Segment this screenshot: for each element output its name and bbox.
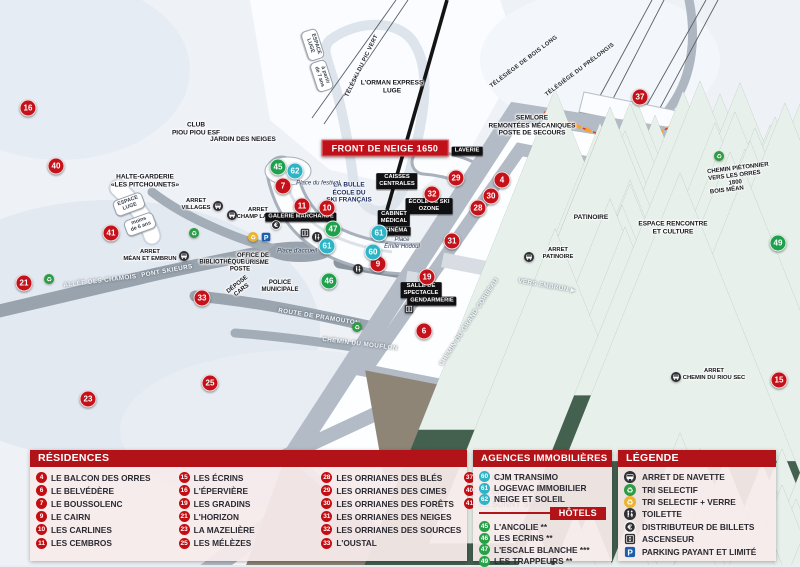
legend-label: ARRET DE NAVETTE — [642, 472, 725, 482]
recycle-icon — [44, 274, 54, 284]
poi-label: ARRET CHEMIN DU RIOU SEC — [683, 368, 745, 382]
map-marker: 25 — [202, 375, 219, 392]
agence-number-badge: 60 — [479, 471, 490, 482]
map-marker: 33 — [194, 290, 211, 307]
recycle-glass-icon — [624, 496, 636, 508]
residence-name: LES ORRIANES DES BLÉS — [336, 473, 442, 483]
residence-entry: 15 LES ÉCRINS — [179, 471, 319, 484]
map-marker: 6 — [416, 323, 433, 340]
map-marker: 47 — [325, 221, 342, 238]
map-marker: 15 — [771, 372, 788, 389]
residence-name: LES ORRIANES DES FORÊTS — [336, 499, 454, 509]
hotel-entry: 47 L'ESCALE BLANCHE *** — [479, 544, 606, 555]
legend-entry: TRI SELECTIF — [624, 483, 770, 495]
bus-icon — [227, 210, 237, 220]
residence-entry: 9 LE CAIRN — [36, 510, 176, 523]
residence-number-badge: 4 — [36, 472, 47, 483]
bus-icon — [524, 252, 534, 262]
residence-number-badge: 21 — [179, 511, 190, 522]
poi-label: L'ORMAN EXPRESS LUGE — [361, 79, 424, 94]
residence-entry: 21 L'HORIZON — [179, 510, 319, 523]
residence-number-badge: 11 — [36, 538, 47, 549]
residences-list: 4 LE BALCON DES ORRES 6 LE BELVÉDÈRE 7 L… — [30, 467, 467, 561]
residence-number-badge: 15 — [179, 472, 190, 483]
poi-label: HALTE-GARDERIE «LES PITCHOUNETS» — [111, 173, 179, 188]
residence-entry: 4 LE BALCON DES ORRES — [36, 471, 176, 484]
agence-number-badge: 62 — [479, 494, 490, 505]
residence-entry: 16 L'ÉPERVIÈRE — [179, 484, 319, 497]
recycle-icon — [624, 484, 636, 496]
residences-header: RÉSIDENCES — [30, 450, 467, 467]
residence-entry: 25 LES MÉLÈZES — [179, 536, 319, 549]
poi-label: ESPACE RENCONTRE ET CULTURE — [638, 220, 707, 235]
map-marker: 40 — [48, 158, 65, 175]
legende-header: LÉGENDE — [618, 450, 776, 467]
agences-header: AGENCES IMMOBILIÈRES — [473, 450, 612, 467]
residence-name: LES ORRIANES DES CIMES — [336, 486, 446, 496]
agence-name: CJM TRANSIMO — [494, 472, 558, 482]
map-marker: 49 — [770, 235, 787, 252]
residence-entry: 31 LES ORRIANES DES NEIGES — [321, 510, 461, 523]
residence-number-badge: 28 — [321, 472, 332, 483]
map-marker: 61 — [371, 225, 388, 242]
poi-label: SEMLORE REMONTÉES MÉCANIQUES POSTE DE SE… — [488, 115, 575, 138]
residence-number-badge: 33 — [321, 538, 332, 549]
front-de-neige-badge: FRONT DE NEIGE 1650 — [322, 140, 449, 157]
residence-name: LES MÉLÈZES — [194, 538, 252, 548]
residence-name: LES CARLINES — [51, 525, 112, 535]
map-marker: 62 — [287, 163, 304, 180]
hotel-entry: 46 LES ECRINS ** — [479, 533, 606, 544]
residence-name: LE BELVÉDÈRE — [51, 486, 114, 496]
residence-number-badge: 6 — [36, 485, 47, 496]
map-marker: 19 — [419, 269, 436, 286]
legend-label: TOILETTE — [642, 509, 682, 519]
euro-icon — [624, 521, 636, 533]
recycle-icon — [714, 151, 724, 161]
residence-name: LES ORRIANES DES NEIGES — [336, 512, 451, 522]
residence-name: L'OUSTAL — [336, 538, 377, 548]
agence-number-badge: 61 — [479, 483, 490, 494]
residence-name: LES ORRIANES DES SOURCES — [336, 525, 461, 535]
legend-label: PARKING PAYANT ET LIMITÉ — [642, 547, 756, 557]
agence-entry: 60 CJM TRANSIMO — [479, 471, 606, 482]
residence-name: LE BOUSSOLENC — [51, 499, 122, 509]
residence-name: L'HORIZON — [194, 512, 239, 522]
bus-icon — [671, 372, 681, 382]
legende-panel: LÉGENDE ARRET DE NAVETTE TRI SELECTIF TR… — [618, 450, 776, 561]
residence-entry: 33 L'OUSTAL — [321, 536, 461, 549]
elevator-icon — [624, 533, 636, 545]
elevator-icon — [404, 304, 414, 314]
poi-label: ARRET MÉAN ET EMBRUN — [123, 249, 176, 263]
poi-label: POSTE — [230, 266, 250, 273]
parking-icon — [261, 232, 271, 242]
poi-label: LAVERIE — [452, 147, 483, 156]
legend-label: ASCENSEUR — [642, 534, 694, 544]
residence-name: LA MAZELIÈRE — [194, 525, 255, 535]
map-root: { "colors":{"header_red":"#b21318","resi… — [0, 0, 800, 565]
hotel-entry: 45 L'ANCOLIE ** — [479, 521, 606, 532]
map-marker: 21 — [16, 275, 33, 292]
recycle-glass-icon — [248, 232, 258, 242]
poi-label: SALLE DE SPECTACLE — [401, 282, 442, 298]
residence-name: LES GRADINS — [194, 499, 251, 509]
poi-label: Place Émile Hodoul — [384, 237, 420, 251]
legend-label: DISTRIBUTEUR DE BILLETS — [642, 522, 754, 532]
agence-name: NEIGE ET SOLEIL — [494, 494, 565, 504]
residence-entry: 11 LES CEMBROS — [36, 536, 176, 549]
parking-icon — [624, 546, 636, 558]
map-marker: 23 — [80, 391, 97, 408]
residence-number-badge: 31 — [321, 511, 332, 522]
legend-entry: ASCENSEUR — [624, 533, 770, 545]
map-marker: 60 — [365, 244, 382, 261]
residence-number-badge: 19 — [179, 498, 190, 509]
residence-name: LE CAIRN — [51, 512, 90, 522]
poi-label: PATINOIRE — [574, 214, 608, 222]
residence-entry: 10 LES CARLINES — [36, 523, 176, 536]
poi-label: ARRET VILLAGES — [182, 198, 211, 212]
residence-number-badge: 30 — [321, 498, 332, 509]
poi-label: Place du festival — [296, 180, 340, 187]
poi-label: Place d'accueil — [277, 248, 317, 255]
poi-label: GENDARMERIE — [407, 297, 456, 306]
map-marker: 10 — [319, 200, 336, 217]
residence-name: L'ÉPERVIÈRE — [194, 486, 248, 496]
agence-name: LOGEVAC IMMOBILIER — [494, 483, 587, 493]
residence-entry: 7 LE BOUSSOLENC — [36, 497, 176, 510]
poi-label: POLICE MUNICIPALE — [262, 280, 299, 294]
poi-label: CABINET MÉDICAL — [378, 210, 410, 226]
hotel-number-badge: 46 — [479, 533, 490, 544]
hotel-name: L'ESCALE BLANCHE *** — [494, 545, 590, 555]
residence-number-badge: 25 — [179, 538, 190, 549]
hotel-number-badge: 47 — [479, 544, 490, 555]
map-marker: 45 — [270, 159, 287, 176]
hotels-header: HÔTELS — [550, 507, 606, 520]
residences-panel: RÉSIDENCES 4 LE BALCON DES ORRES 6 LE BE… — [30, 450, 467, 561]
residence-name: LES ÉCRINS — [194, 473, 244, 483]
legend-entry: ARRET DE NAVETTE — [624, 471, 770, 483]
residence-name: LES CEMBROS — [51, 538, 112, 548]
agence-entry: 62 NEIGE ET SOLEIL — [479, 494, 606, 505]
residence-number-badge: 7 — [36, 498, 47, 509]
legend-label: TRI SELECTIF — [642, 485, 698, 495]
legend-label: TRI SELECTIF + VERRE — [642, 497, 736, 507]
map-marker: 41 — [103, 225, 120, 242]
hotels-divider: HÔTELS — [479, 506, 606, 520]
hotels-list: 45 L'ANCOLIE ** 46 LES ECRINS ** 47 L'ES… — [479, 521, 606, 567]
map-marker: 32 — [424, 186, 441, 203]
poi-label: CAISSES CENTRALES — [376, 173, 417, 189]
map-marker: 16 — [20, 100, 37, 117]
map-marker: 31 — [444, 233, 461, 250]
agence-entry: 61 LOGEVAC IMMOBILIER — [479, 482, 606, 493]
map-marker: 46 — [321, 273, 338, 290]
map-marker: 29 — [448, 170, 465, 187]
residence-entry: 6 LE BELVÉDÈRE — [36, 484, 176, 497]
wc-icon — [624, 508, 636, 520]
residence-entry: 30 LES ORRIANES DES FORÊTS — [321, 497, 461, 510]
elevator-icon — [300, 228, 310, 238]
recycle-icon — [189, 228, 199, 238]
bus-icon — [213, 201, 223, 211]
bus-icon — [179, 251, 189, 261]
wc-icon — [353, 264, 363, 274]
legend-entry: TRI SELECTIF + VERRE — [624, 496, 770, 508]
map-marker: 30 — [483, 188, 500, 205]
residence-entry: 23 LA MAZELIÈRE — [179, 523, 319, 536]
residence-entry: 32 LES ORRIANES DES SOURCES — [321, 523, 461, 536]
map-marker: 37 — [632, 89, 649, 106]
residence-name: LE BALCON DES ORRES — [51, 473, 151, 483]
agences-list: 60 CJM TRANSIMO 61 LOGEVAC IMMOBILIER 62… — [479, 471, 606, 505]
residence-number-badge: 29 — [321, 485, 332, 496]
hotels-divider-line — [479, 512, 550, 514]
map-marker: 28 — [470, 200, 487, 217]
residence-entry: 28 LES ORRIANES DES BLÉS — [321, 471, 461, 484]
hotel-entry: 49 LES TRAPPEURS ** — [479, 555, 606, 566]
residence-number-badge: 16 — [179, 485, 190, 496]
hotel-name: L'ANCOLIE ** — [494, 522, 547, 532]
hotel-name: LES ECRINS ** — [494, 533, 553, 543]
bus-icon — [624, 471, 636, 483]
poi-label: CLUB PIOU PIOU ESF — [172, 121, 220, 136]
poi-label: ARRET PATINOIRE — [543, 247, 574, 261]
residence-entry: 19 LES GRADINS — [179, 497, 319, 510]
map-marker: 7 — [275, 178, 292, 195]
residence-number-badge: 10 — [36, 524, 47, 535]
hotel-number-badge: 45 — [479, 521, 490, 532]
residence-number-badge: 23 — [179, 524, 190, 535]
legende-list: ARRET DE NAVETTE TRI SELECTIF TRI SELECT… — [618, 467, 776, 561]
residence-number-badge: 32 — [321, 524, 332, 535]
legend-entry: DISTRIBUTEUR DE BILLETS — [624, 521, 770, 533]
residence-entry: 29 LES ORRIANES DES CIMES — [321, 484, 461, 497]
map-marker: 61 — [319, 238, 336, 255]
residence-number-badge: 9 — [36, 511, 47, 522]
resort-map: ♻ ♻ € P — [0, 0, 800, 565]
euro-icon — [271, 220, 281, 230]
poi-label: JARDIN DES NEIGES — [210, 136, 276, 144]
map-marker: 4 — [494, 172, 511, 189]
legend-entry: TOILETTE — [624, 508, 770, 520]
map-marker: 11 — [294, 198, 311, 215]
legend-entry: PARKING PAYANT ET LIMITÉ — [624, 545, 770, 557]
agences-panel: AGENCES IMMOBILIÈRES 60 CJM TRANSIMO 61 … — [473, 450, 612, 561]
recycle-icon — [352, 322, 362, 332]
